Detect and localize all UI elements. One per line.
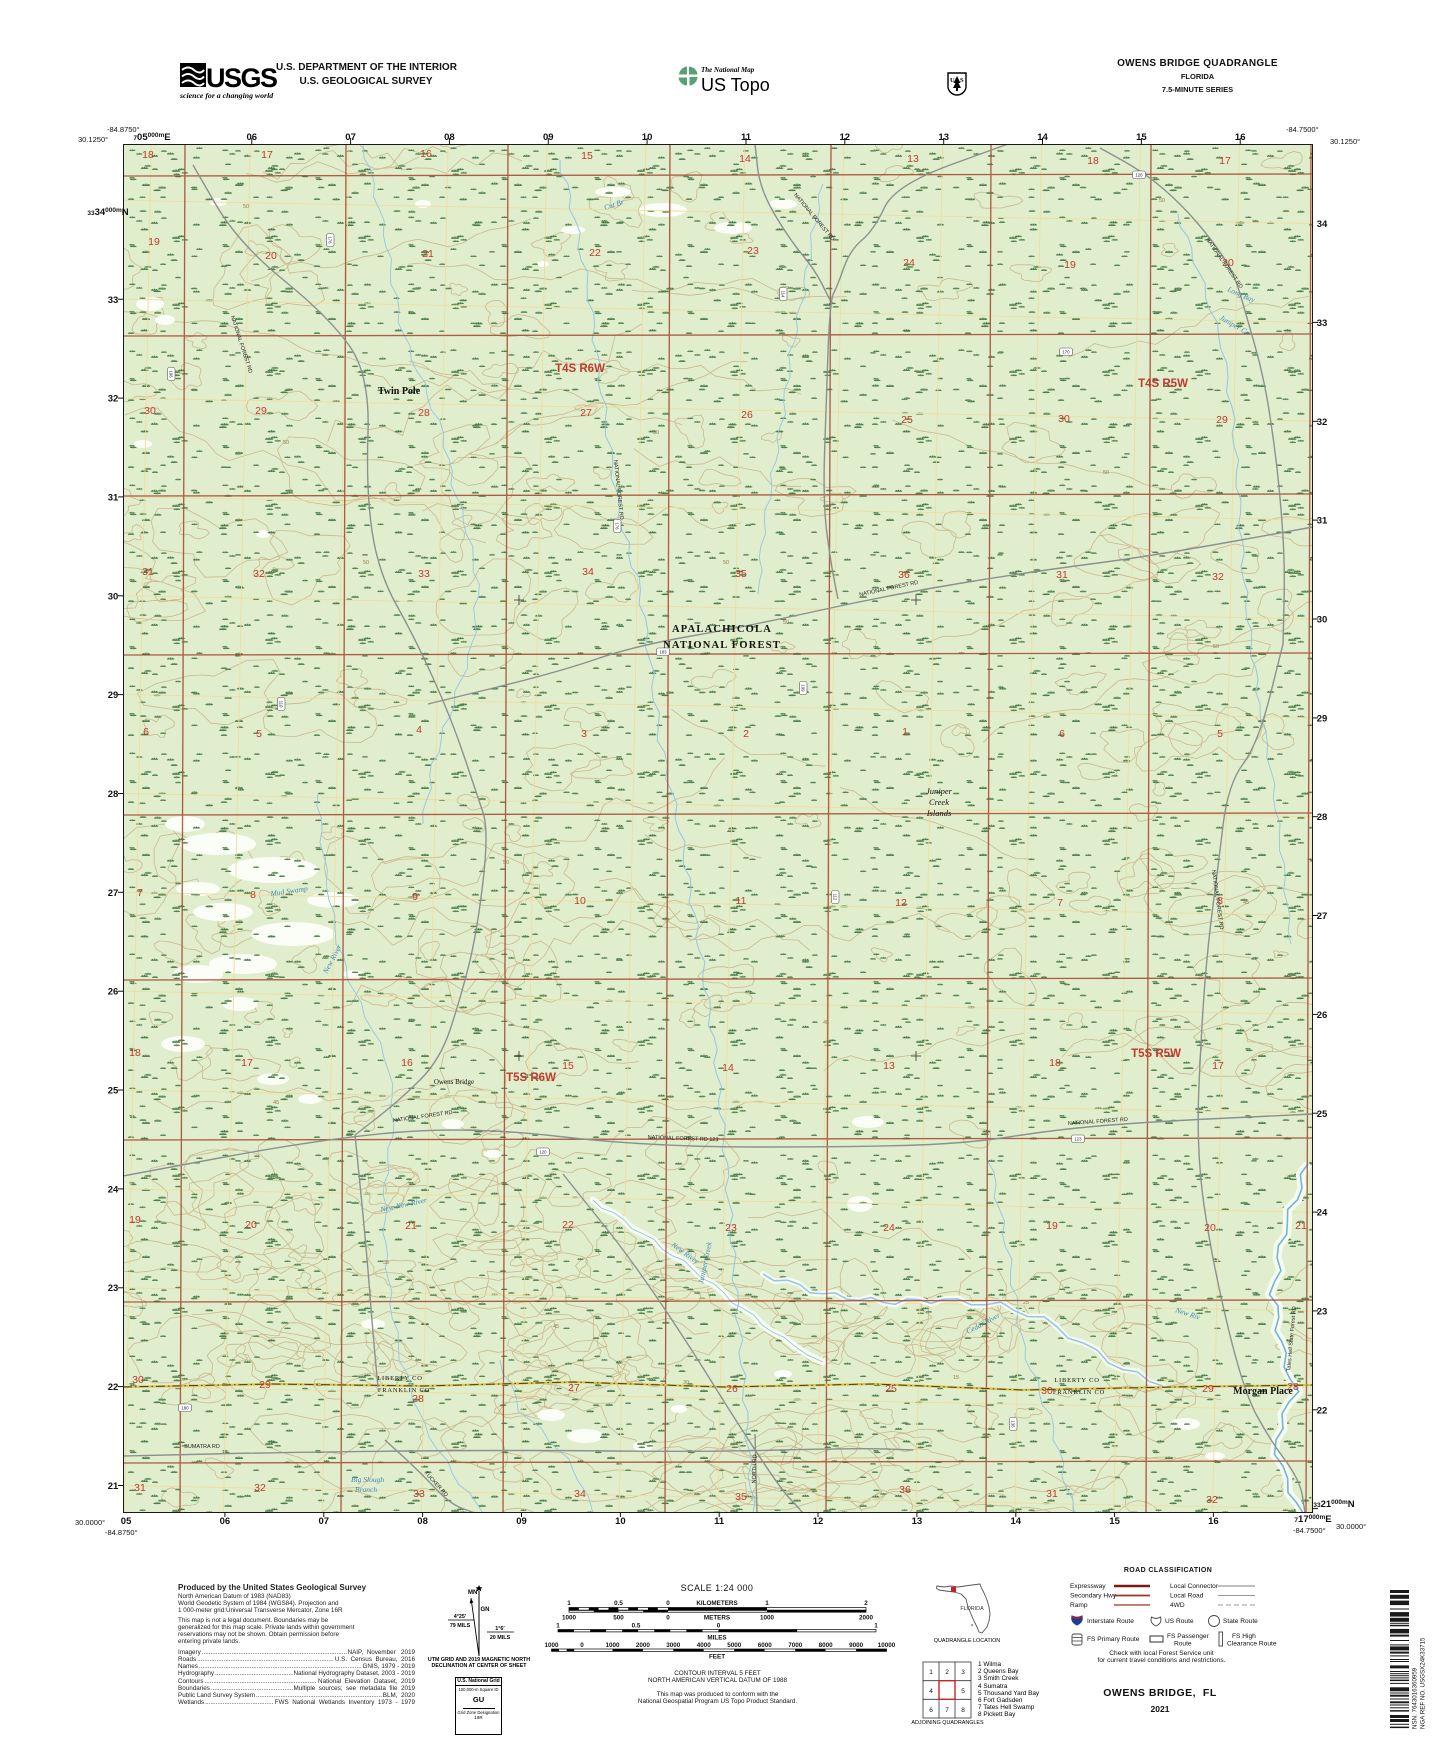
- svg-text:-84.7500°: -84.7500°: [1293, 1526, 1326, 1535]
- svg-text:29: 29: [1317, 713, 1328, 724]
- svg-text:24: 24: [1317, 1208, 1328, 1219]
- svg-text:06: 06: [220, 1516, 231, 1527]
- svg-text:1000: 1000: [760, 1615, 775, 1622]
- svg-text:30.0000°: 30.0000°: [1336, 1522, 1366, 1531]
- svg-text:4°25′: 4°25′: [454, 1614, 467, 1620]
- svg-text:2000: 2000: [636, 1642, 651, 1649]
- svg-text:30.1250°: 30.1250°: [1330, 137, 1360, 146]
- svg-text:4WD: 4WD: [1170, 1602, 1185, 1609]
- svg-text:1: 1: [567, 1600, 571, 1607]
- svg-text:Expressway: Expressway: [1070, 1583, 1106, 1590]
- svg-text:20 MILS: 20 MILS: [490, 1635, 511, 1641]
- svg-text:500: 500: [613, 1615, 624, 1622]
- svg-text:1: 1: [929, 1669, 933, 1676]
- svg-text:7: 7: [945, 1707, 949, 1714]
- svg-text:3321000mN: 3321000mN: [1313, 1499, 1354, 1510]
- svg-text:-84.8750°: -84.8750°: [105, 1528, 138, 1537]
- svg-text:705000mE: 705000mE: [133, 132, 170, 143]
- svg-text:State Route: State Route: [1223, 1618, 1258, 1625]
- svg-text:6000: 6000: [758, 1642, 773, 1649]
- svg-text:5000: 5000: [727, 1642, 742, 1649]
- svg-text:13: 13: [912, 1516, 923, 1527]
- svg-text:1: 1: [874, 1623, 878, 1630]
- svg-text:15: 15: [1109, 1516, 1120, 1527]
- svg-text:1°6′: 1°6′: [495, 1626, 505, 1632]
- svg-text:32: 32: [1317, 417, 1328, 428]
- svg-text:NSN. 7643016360959: NSN. 7643016360959: [1412, 1667, 1419, 1729]
- svg-text:Secondary Hwy: Secondary Hwy: [1070, 1593, 1117, 1600]
- svg-text:33: 33: [108, 295, 119, 306]
- svg-text:MILES: MILES: [707, 1635, 726, 1642]
- svg-text:2: 2: [945, 1669, 949, 1676]
- svg-text:05: 05: [121, 1516, 132, 1527]
- svg-text:0.5: 0.5: [632, 1623, 641, 1630]
- svg-text:11: 11: [714, 1516, 725, 1527]
- svg-text:Interstate Route: Interstate Route: [1087, 1618, 1134, 1625]
- svg-text:08: 08: [417, 1516, 428, 1527]
- svg-text:-84.8750°: -84.8750°: [107, 125, 140, 134]
- svg-text:6: 6: [929, 1707, 933, 1714]
- svg-text:30: 30: [1317, 615, 1328, 626]
- svg-text:12: 12: [813, 1516, 824, 1527]
- svg-text:2: 2: [864, 1600, 868, 1607]
- svg-text:27: 27: [1317, 911, 1328, 922]
- svg-text:1000: 1000: [605, 1642, 620, 1649]
- svg-text:26: 26: [108, 987, 119, 998]
- svg-text:23: 23: [108, 1283, 119, 1294]
- svg-text:07: 07: [319, 1516, 330, 1527]
- svg-text:3000: 3000: [666, 1642, 681, 1649]
- svg-text:0: 0: [717, 1623, 721, 1630]
- svg-text:1000: 1000: [562, 1615, 577, 1622]
- svg-text:30.1250°: 30.1250°: [78, 135, 108, 144]
- svg-text:0: 0: [666, 1615, 670, 1622]
- svg-text:Local Road: Local Road: [1170, 1593, 1204, 1600]
- svg-text:32: 32: [108, 394, 119, 405]
- svg-text:22: 22: [108, 1382, 119, 1393]
- svg-text:1000: 1000: [544, 1642, 559, 1649]
- svg-text:09: 09: [516, 1516, 527, 1527]
- svg-text:28: 28: [1317, 812, 1328, 823]
- svg-text:4000: 4000: [697, 1642, 712, 1649]
- svg-text:1: 1: [556, 1623, 560, 1630]
- svg-text:NGA REF NO. USGSX24K33715: NGA REF NO. USGSX24K33715: [1420, 1637, 1427, 1729]
- svg-text:28: 28: [108, 789, 119, 800]
- svg-text:79 MILS: 79 MILS: [450, 1623, 471, 1629]
- svg-text:22: 22: [1317, 1405, 1328, 1416]
- svg-text:FS Passenger: FS Passenger: [1167, 1633, 1210, 1640]
- svg-text:4: 4: [929, 1688, 933, 1695]
- svg-text:3334000mN: 3334000mN: [87, 207, 128, 218]
- svg-text:30: 30: [108, 591, 119, 602]
- svg-text:2000: 2000: [859, 1615, 874, 1622]
- svg-text:0.5: 0.5: [614, 1600, 623, 1607]
- svg-text:33: 33: [1317, 318, 1328, 329]
- svg-text:GN: GN: [481, 1607, 490, 1613]
- svg-text:5: 5: [961, 1688, 965, 1695]
- svg-text:23: 23: [1317, 1306, 1328, 1317]
- svg-text:0: 0: [580, 1642, 584, 1649]
- svg-text:29: 29: [108, 690, 119, 701]
- svg-text:FS Primary Route: FS Primary Route: [1087, 1636, 1140, 1643]
- svg-text:717000mE: 717000mE: [1294, 1514, 1331, 1525]
- svg-text:9000: 9000: [849, 1642, 864, 1649]
- svg-text:31: 31: [1317, 516, 1328, 527]
- svg-text:KILOMETERS: KILOMETERS: [696, 1600, 737, 1607]
- svg-text:1: 1: [765, 1600, 769, 1607]
- svg-text:Local Connector: Local Connector: [1170, 1583, 1219, 1590]
- svg-text:27: 27: [108, 888, 119, 899]
- svg-text:25: 25: [1317, 1109, 1328, 1120]
- svg-text:METERS: METERS: [704, 1615, 730, 1622]
- svg-text:7000: 7000: [788, 1642, 803, 1649]
- svg-text:34: 34: [1317, 219, 1328, 230]
- svg-text:FS High: FS High: [1232, 1633, 1256, 1640]
- svg-text:MN: MN: [468, 1590, 477, 1596]
- svg-text:10000: 10000: [878, 1642, 896, 1649]
- svg-text:FLORIDA: FLORIDA: [960, 1606, 984, 1612]
- svg-text:-84.7500°: -84.7500°: [1286, 125, 1319, 134]
- svg-text:0: 0: [666, 1600, 670, 1607]
- svg-text:16: 16: [1208, 1516, 1219, 1527]
- svg-text:14: 14: [1011, 1516, 1022, 1527]
- svg-text:31: 31: [108, 492, 119, 503]
- svg-text:26: 26: [1317, 1010, 1328, 1021]
- svg-text:Ramp: Ramp: [1070, 1602, 1088, 1609]
- svg-text:3: 3: [961, 1669, 965, 1676]
- svg-text:8000: 8000: [819, 1642, 834, 1649]
- svg-text:Clearance Route: Clearance Route: [1227, 1641, 1277, 1648]
- svg-text:21: 21: [108, 1481, 119, 1492]
- svg-text:Route: Route: [1174, 1641, 1192, 1648]
- svg-text:FEET: FEET: [709, 1654, 725, 1660]
- svg-text:30.0000°: 30.0000°: [75, 1518, 105, 1527]
- svg-text:24: 24: [108, 1184, 119, 1195]
- svg-text:10: 10: [615, 1516, 626, 1527]
- svg-text:8: 8: [961, 1707, 965, 1714]
- svg-text:US Route: US Route: [1165, 1618, 1194, 1625]
- svg-text:25: 25: [108, 1086, 119, 1097]
